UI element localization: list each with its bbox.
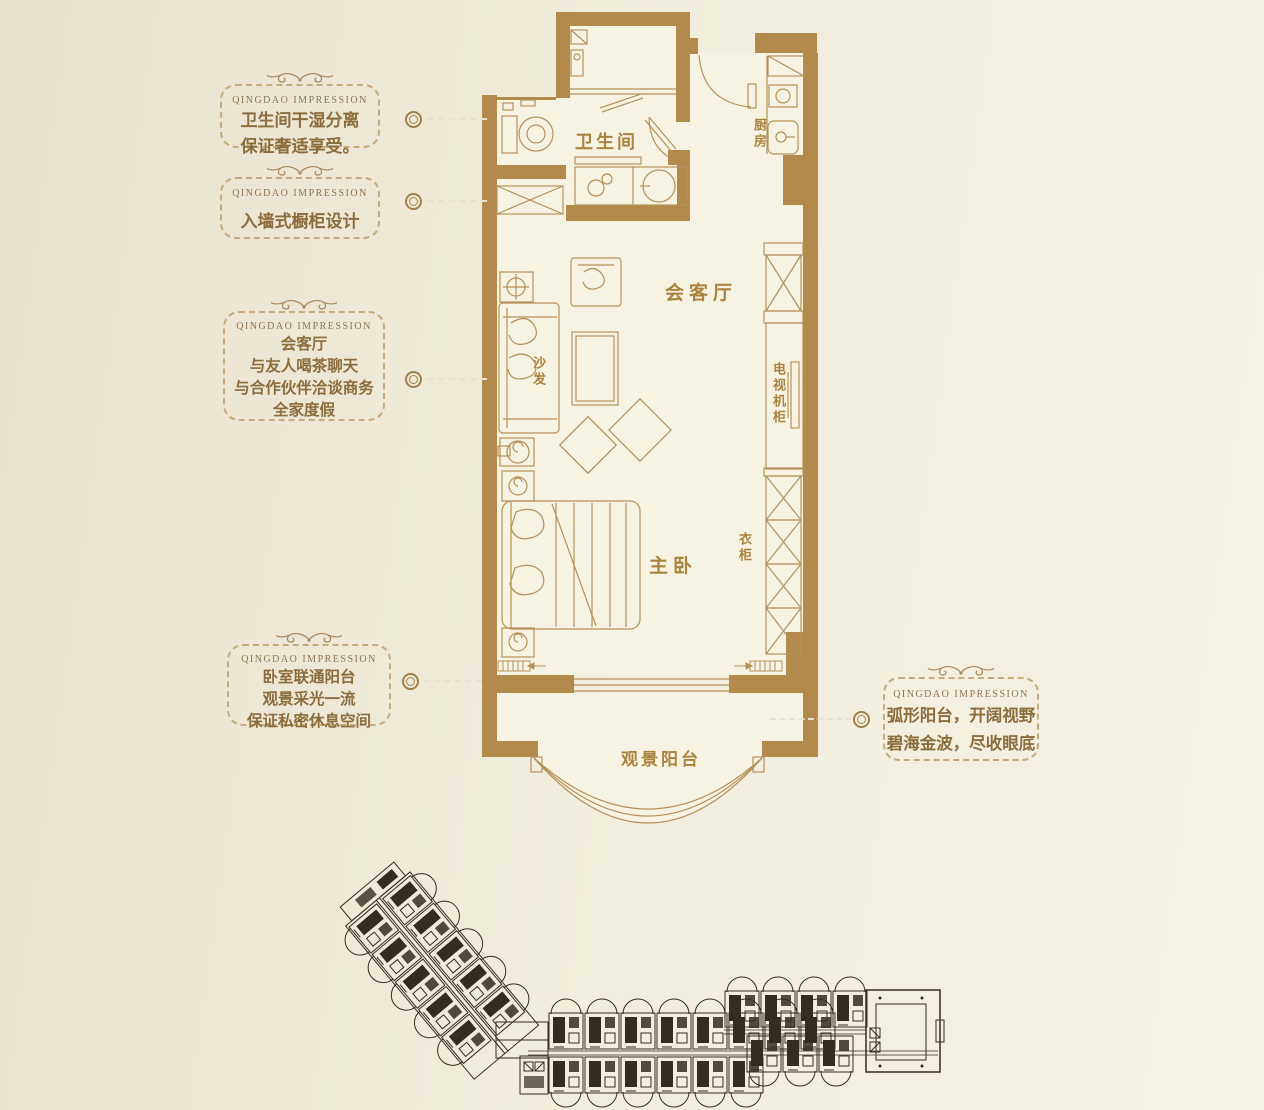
callout-header: QINGDAO IMPRESSION [885,688,1037,702]
callout-bathroom: QINGDAO IMPRESSION 卫生间干湿分离 保证奢适享受。 [220,84,380,148]
label-living-room: 会客厅 [665,278,737,305]
leader-line [427,378,487,380]
callout-line: 碧海金波，尽收眼底 [885,730,1037,758]
callout-line: 入墙式橱柜设计 [222,209,378,235]
label-balcony: 观景阳台 [621,745,701,770]
site-key-plan [324,850,944,1107]
flourish-icon [264,163,336,179]
label-wardrobe: 衣柜 [735,532,754,564]
callout-line: 与友人喝茶聊天 [225,356,383,378]
leader-line [424,680,482,682]
leader-line [770,718,852,720]
callout-line: 卫生间干湿分离 [222,108,378,134]
callout-header: QINGDAO IMPRESSION [222,187,378,201]
flourish-icon [925,663,997,679]
callout-line: 弧形阳台，开阔视野 [885,702,1037,730]
flourish-icon [268,297,340,313]
connector-dot [405,371,422,388]
callout-living: QINGDAO IMPRESSION 会客厅 与友人喝茶聊天 与合作伙伴洽谈商务… [223,311,385,421]
flourish-icon [264,70,336,86]
label-bedroom: 主卧 [649,551,697,578]
label-kitchen: 厨房 [750,118,769,150]
callout-line: 观景采光一流 [229,689,389,711]
callout-line: 保证奢适享受。 [222,134,378,160]
callout-header: QINGDAO IMPRESSION [222,94,378,108]
callout-line: 保证私密休息空间 [229,711,389,733]
brochure-page: 卫生间 厨房 会客厅 沙发 电视机柜 主卧 衣柜 观景阳台 QINGDAO IM… [0,0,1264,1110]
leader-line [427,118,487,120]
floor-plan [0,0,1264,1110]
connector-dot [405,193,422,210]
flourish-icon [273,630,345,646]
label-bathroom: 卫生间 [575,128,638,154]
callout-line: 与合作伙伴洽谈商务 [225,378,383,400]
leader-line [427,200,487,202]
callout-cabinet: QINGDAO IMPRESSION 入墙式橱柜设计 [220,177,380,239]
lobby-block [866,990,944,1072]
connector-dot [405,111,422,128]
callout-bedroom: QINGDAO IMPRESSION 卧室联通阳台 观景采光一流 保证私密休息空… [227,644,391,726]
callout-line: 全家度假 [225,400,383,422]
connector-dot [402,673,419,690]
label-tv-cabinet: 电视机柜 [769,362,788,426]
callout-balcony: QINGDAO IMPRESSION 弧形阳台，开阔视野 碧海金波，尽收眼底 [883,677,1039,761]
connector-dot [853,711,870,728]
callout-header: QINGDAO IMPRESSION [225,320,383,334]
label-sofa: 沙发 [529,356,548,388]
callout-line: 卧室联通阳台 [229,667,389,689]
callout-header: QINGDAO IMPRESSION [229,653,389,667]
callout-line: 会客厅 [225,334,383,356]
